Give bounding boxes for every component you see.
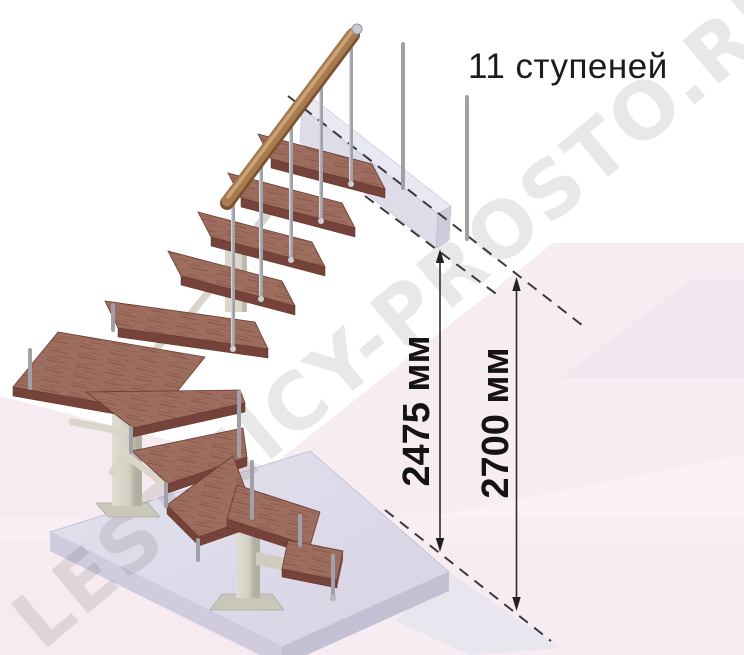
dimension-label-2475: 2475 мм	[396, 335, 438, 486]
handrail-end-cap	[352, 24, 362, 34]
diagram-canvas: LESTNICY-PROSTO.RU	[0, 0, 744, 655]
staircase-diagram: LESTNICY-PROSTO.RU	[0, 0, 744, 655]
dimension-label-2700: 2700 мм	[475, 347, 517, 498]
rod-foot	[330, 595, 337, 602]
page-title: 11 ступеней	[468, 47, 668, 86]
